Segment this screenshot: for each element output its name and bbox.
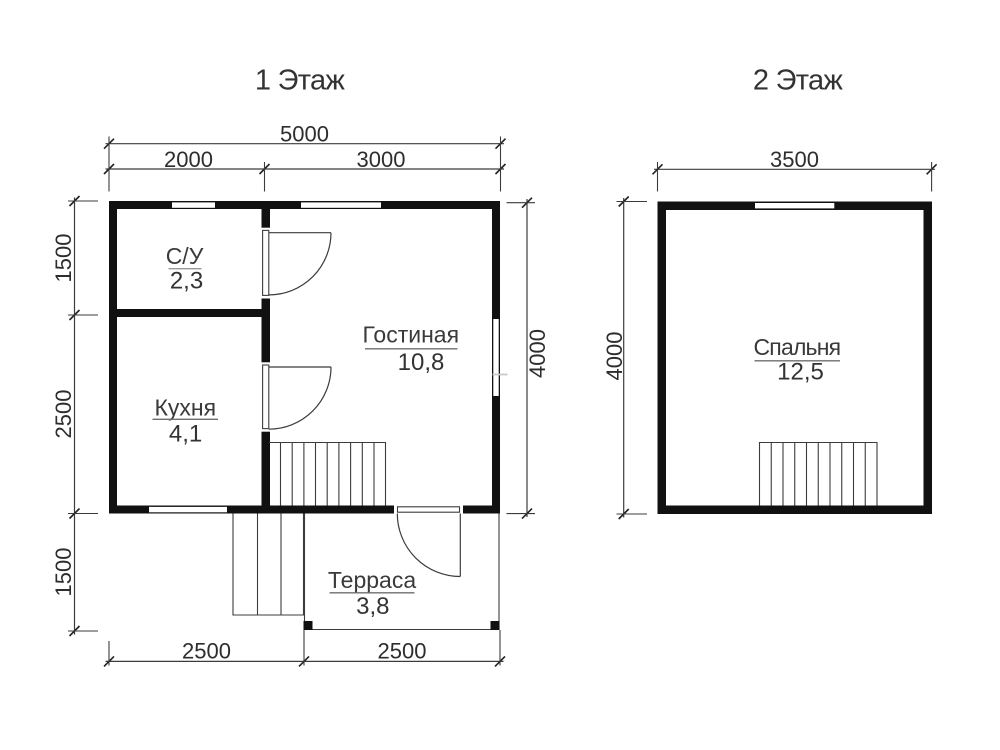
svg-text:Спальня: Спальня bbox=[753, 334, 840, 360]
svg-text:Терраса: Терраса bbox=[328, 567, 416, 593]
svg-text:2 Этаж: 2 Этаж bbox=[753, 65, 844, 97]
svg-text:2500: 2500 bbox=[51, 390, 76, 439]
svg-text:Кухня: Кухня bbox=[155, 395, 217, 421]
svg-text:2500: 2500 bbox=[378, 639, 427, 664]
svg-text:1 Этаж: 1 Этаж bbox=[255, 65, 346, 97]
svg-text:12,5: 12,5 bbox=[777, 359, 824, 386]
svg-text:1500: 1500 bbox=[51, 548, 76, 597]
svg-text:2500: 2500 bbox=[182, 639, 231, 664]
svg-text:1500: 1500 bbox=[51, 234, 76, 283]
svg-text:10,8: 10,8 bbox=[398, 349, 445, 376]
svg-text:3500: 3500 bbox=[770, 147, 819, 172]
svg-text:2,3: 2,3 bbox=[170, 267, 203, 294]
svg-text:Гостиная: Гостиная bbox=[363, 322, 460, 348]
svg-text:3,8: 3,8 bbox=[356, 593, 389, 620]
svg-text:4,1: 4,1 bbox=[169, 421, 202, 448]
svg-text:4000: 4000 bbox=[602, 332, 627, 381]
svg-text:С/У: С/У bbox=[166, 243, 204, 269]
svg-text:4000: 4000 bbox=[525, 329, 550, 378]
svg-text:3000: 3000 bbox=[357, 147, 406, 172]
svg-text:2000: 2000 bbox=[164, 147, 213, 172]
svg-text:5000: 5000 bbox=[280, 122, 329, 147]
